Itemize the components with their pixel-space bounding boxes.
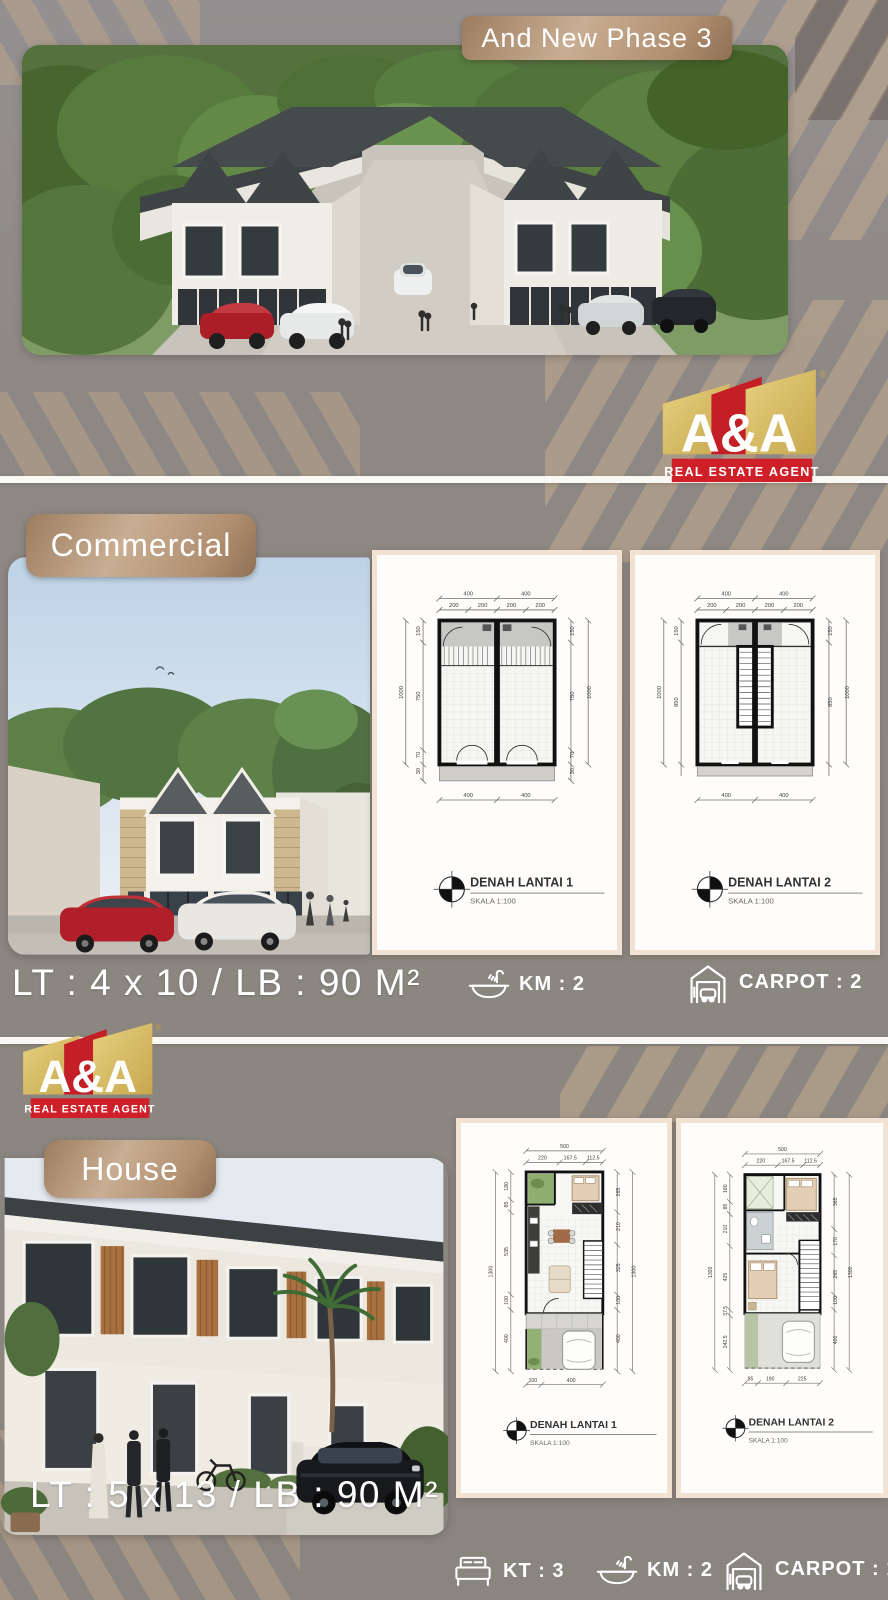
svg-text:750: 750 xyxy=(570,692,576,702)
hero-scene xyxy=(22,45,788,355)
svg-text:400: 400 xyxy=(521,793,531,799)
logo-tagline: REAL ESTATE AGENT xyxy=(664,465,819,479)
flyer-page: And New Phase 3 ® A&A REAL ESTATE AGENT … xyxy=(0,0,888,1600)
feature-label: CARPOT : 1 xyxy=(775,1558,888,1581)
commercial-scene xyxy=(8,557,370,955)
logo-brand-text: A&A xyxy=(38,1051,137,1102)
svg-text:1000: 1000 xyxy=(657,686,663,699)
svg-text:1300: 1300 xyxy=(848,1266,854,1278)
commercial-badge-label: Commercial xyxy=(51,527,232,564)
svg-text:400: 400 xyxy=(616,1334,622,1343)
floorplan-drawing xyxy=(697,621,812,777)
house-feature-carpot: CARPOT : 1 xyxy=(722,1542,888,1597)
bath-icon xyxy=(468,965,510,1003)
svg-text:400: 400 xyxy=(779,592,789,598)
stripe-decoration xyxy=(560,1046,888,1122)
svg-text:180: 180 xyxy=(723,1184,729,1193)
commercial-feature-km: KM : 2 xyxy=(468,958,585,1010)
svg-text:500: 500 xyxy=(560,1144,569,1150)
svg-text:1000: 1000 xyxy=(587,686,593,699)
plan-title-block: DENAH LANTAI 2 SKALA 1:100 xyxy=(722,1415,872,1444)
svg-text:100: 100 xyxy=(528,1378,537,1384)
house-feature-kt: KT : 3 xyxy=(452,1546,565,1596)
svg-text:190: 190 xyxy=(766,1376,775,1382)
svg-text:220: 220 xyxy=(757,1158,766,1164)
svg-text:425: 425 xyxy=(723,1273,729,1282)
svg-text:70: 70 xyxy=(416,752,422,758)
house-feature-km: KM : 2 xyxy=(596,1544,713,1596)
svg-text:150: 150 xyxy=(674,626,680,636)
svg-text:85: 85 xyxy=(504,1202,510,1208)
svg-text:400: 400 xyxy=(779,793,789,799)
svg-text:535: 535 xyxy=(504,1247,510,1256)
svg-text:850: 850 xyxy=(674,697,680,707)
svg-text:167.5: 167.5 xyxy=(564,1155,577,1161)
logo-brand-text: A&A xyxy=(681,404,798,464)
svg-text:30: 30 xyxy=(570,768,576,774)
svg-text:400: 400 xyxy=(833,1336,839,1345)
svg-text:750: 750 xyxy=(416,692,422,702)
registered-mark: ® xyxy=(155,1022,162,1032)
svg-text:100: 100 xyxy=(504,1296,510,1305)
svg-text:150: 150 xyxy=(828,626,834,636)
floorplan-drawing xyxy=(439,621,554,781)
svg-text:200: 200 xyxy=(449,603,459,609)
svg-text:150: 150 xyxy=(416,626,422,636)
plan-title: DENAH LANTAI 2 xyxy=(749,1417,835,1428)
svg-text:200: 200 xyxy=(478,603,488,609)
svg-text:37.5: 37.5 xyxy=(723,1306,729,1316)
svg-text:400: 400 xyxy=(721,793,731,799)
svg-text:225: 225 xyxy=(798,1376,807,1382)
brand-logo: ® A&A REAL ESTATE AGENT xyxy=(652,366,832,488)
brand-logo: ® A&A REAL ESTATE AGENT xyxy=(14,1020,166,1123)
svg-text:150: 150 xyxy=(570,626,576,636)
svg-text:200: 200 xyxy=(736,603,746,609)
commercial-floorplan-2: 400 400 200 200 200 200 150 850 1000 150… xyxy=(630,550,880,955)
svg-text:85: 85 xyxy=(723,1204,729,1210)
commercial-badge: Commercial xyxy=(26,514,256,577)
plan-title: DENAH LANTAI 2 xyxy=(728,875,831,889)
commercial-render xyxy=(8,557,370,955)
plan-title-block: DENAH LANTAI 2 SKALA 1:100 xyxy=(692,871,863,907)
svg-text:400: 400 xyxy=(721,592,731,598)
house-badge: House xyxy=(44,1140,216,1198)
house-floorplan-1: 500 220 167.5 112.5 180 85 535 100 400 1… xyxy=(456,1118,672,1498)
svg-text:265: 265 xyxy=(616,1188,622,1197)
svg-text:265: 265 xyxy=(833,1270,839,1279)
plan-title-block: DENAH LANTAI 1 SKALA 1:100 xyxy=(503,1417,656,1447)
svg-text:112.5: 112.5 xyxy=(804,1158,817,1164)
house-badge-label: House xyxy=(81,1151,179,1188)
plan-scale: SKALA 1:100 xyxy=(728,897,774,906)
svg-text:167.5: 167.5 xyxy=(782,1158,795,1164)
commercial-feature-carpot: CARPOT : 2 xyxy=(686,955,862,1010)
plan-scale: SKALA 1:100 xyxy=(470,897,516,906)
svg-text:242.5: 242.5 xyxy=(723,1335,729,1348)
svg-text:200: 200 xyxy=(507,603,517,609)
svg-text:85: 85 xyxy=(748,1376,754,1382)
svg-text:70: 70 xyxy=(570,752,576,758)
garage-icon xyxy=(686,962,730,1004)
plan-title-block: DENAH LANTAI 1 SKALA 1:100 xyxy=(434,871,605,907)
stripe-decoration xyxy=(795,0,888,120)
floorplan-drawing xyxy=(526,1172,603,1369)
house-specs: LT : 5 x 13 / LB : 90 M² xyxy=(30,1474,439,1516)
svg-text:400: 400 xyxy=(463,793,473,799)
bath-icon xyxy=(596,1551,638,1589)
svg-text:1000: 1000 xyxy=(845,686,851,699)
hero-aerial-render xyxy=(22,45,788,355)
svg-text:100: 100 xyxy=(833,1296,839,1305)
svg-text:210: 210 xyxy=(616,1222,622,1231)
svg-text:100: 100 xyxy=(616,1296,622,1305)
plan-title: DENAH LANTAI 1 xyxy=(470,875,573,889)
svg-text:400: 400 xyxy=(521,592,531,598)
stripe-decoration xyxy=(0,392,360,476)
svg-text:200: 200 xyxy=(707,603,717,609)
svg-text:200: 200 xyxy=(765,603,775,609)
plan-scale: SKALA 1:100 xyxy=(530,1440,570,1447)
svg-text:325: 325 xyxy=(616,1263,622,1272)
feature-label: KM : 2 xyxy=(519,973,585,996)
svg-text:210: 210 xyxy=(723,1225,729,1234)
svg-text:850: 850 xyxy=(828,697,834,707)
phase-badge: And New Phase 3 xyxy=(462,16,732,60)
plan-title: DENAH LANTAI 1 xyxy=(530,1419,617,1431)
svg-text:365: 365 xyxy=(833,1197,839,1206)
svg-text:112.5: 112.5 xyxy=(587,1155,600,1161)
svg-text:1300: 1300 xyxy=(489,1266,495,1278)
commercial-floorplan-1: 400 400 200 200 200 200 150 750 70 30 10… xyxy=(372,550,622,955)
feature-label: CARPOT : 2 xyxy=(739,971,862,994)
plan-scale: SKALA 1:100 xyxy=(749,1437,788,1444)
commercial-specs: LT : 4 x 10 / LB : 90 M² xyxy=(12,962,421,1004)
svg-text:400: 400 xyxy=(504,1334,510,1343)
svg-text:220: 220 xyxy=(538,1155,547,1161)
svg-text:500: 500 xyxy=(778,1147,787,1153)
feature-label: KM : 2 xyxy=(647,1559,713,1582)
svg-text:180: 180 xyxy=(504,1182,510,1191)
phase-badge-label: And New Phase 3 xyxy=(481,23,712,54)
svg-text:200: 200 xyxy=(793,603,803,609)
garage-icon xyxy=(722,1549,766,1591)
bed-icon xyxy=(452,1553,494,1589)
svg-text:1300: 1300 xyxy=(708,1266,714,1278)
house-floorplan-2: 500 220 167.5 112.5 180 85 210 425 37.5 … xyxy=(676,1118,888,1498)
svg-text:400: 400 xyxy=(463,592,473,598)
svg-text:200: 200 xyxy=(535,603,545,609)
svg-text:400: 400 xyxy=(567,1378,576,1384)
registered-mark: ® xyxy=(819,370,827,381)
left-tree xyxy=(5,1302,60,1376)
svg-text:170: 170 xyxy=(833,1237,839,1246)
svg-text:30: 30 xyxy=(416,768,422,774)
svg-text:1000: 1000 xyxy=(399,686,405,699)
feature-label: KT : 3 xyxy=(503,1560,565,1583)
floorplan-drawing xyxy=(745,1175,820,1369)
logo-tagline: REAL ESTATE AGENT xyxy=(24,1104,155,1116)
svg-text:1300: 1300 xyxy=(631,1266,637,1278)
